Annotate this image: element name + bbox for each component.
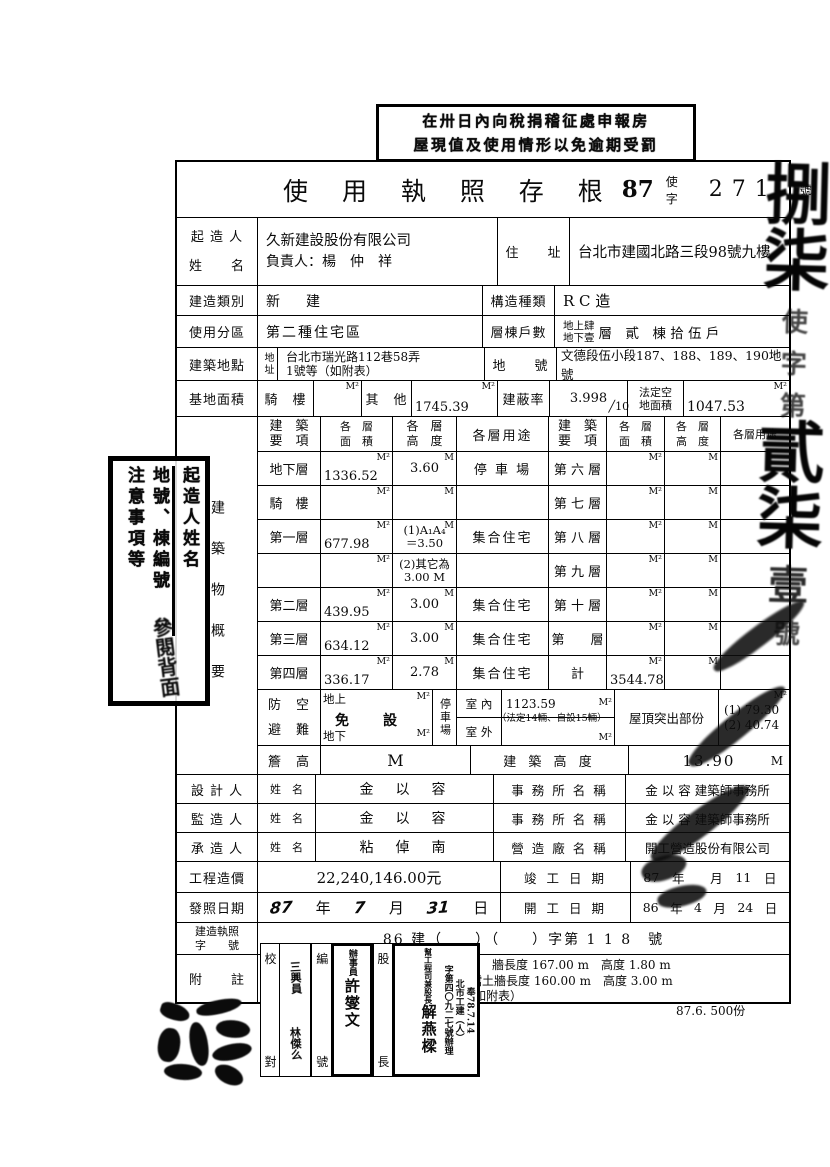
building-summary-grid: 建 築要 項 各 層面 積 各 層高 度 各層用途 建 築要 項 各 層面 積 … xyxy=(257,417,789,774)
floor-height: M3.60 xyxy=(392,452,456,485)
contractor-name: 粘 倬 南 xyxy=(315,833,493,861)
cost-value: 22,240,146.00元 xyxy=(257,862,500,892)
floor-use: 集合住宅 xyxy=(456,622,548,655)
build-type-row: 建造類別 新 建 構造種類 R C 造 xyxy=(177,285,789,315)
floor-height: M (1)A₁A₄＝3.50 xyxy=(392,520,456,553)
floor-area: M² xyxy=(606,622,664,655)
floor-area: M²1336.52 xyxy=(320,452,392,485)
margin-char: 字 xyxy=(780,352,807,379)
floor-row: 第一層 M²677.98 M (1)A₁A₄＝3.50 集合住宅 第 八 層 M… xyxy=(258,519,789,553)
floor-area: M² xyxy=(606,486,664,519)
form-title: 使 用 執 照 存 根 xyxy=(283,172,616,208)
license-year: 87 xyxy=(622,176,654,203)
contractor-label: 承 造 人 xyxy=(177,833,257,861)
build-type-value: 新 建 xyxy=(257,286,482,315)
col-use-header: 各層用途 xyxy=(456,417,548,451)
structure-type-label: 構造種類 xyxy=(482,286,554,315)
floors-units-label: 層棟戶數 xyxy=(482,316,554,347)
notice-stamp-box: 起造人姓名 地號、棟編號 注意事項等 參閱背面 xyxy=(108,456,210,706)
margin-char: 柒 xyxy=(763,227,830,295)
floor-height: M xyxy=(664,554,720,587)
issue-date-value: 87年 7月 31日 xyxy=(257,893,500,922)
notes-row: 附 註 校 對 三興員 林傑么 編 號 xyxy=(177,954,789,1002)
legal-open-space-label: 法定空 地面積 xyxy=(627,381,683,416)
floor-name: 第 八 層 xyxy=(548,520,606,553)
tax-notice-line2: 屋現值及使用情形以免逾期受罰 xyxy=(379,133,693,157)
notes-body: 校 對 三興員 林傑么 編 號 辦事員 許燮文 xyxy=(257,955,789,1002)
floor-area: M² xyxy=(606,452,664,485)
cost-label: 工程造價 xyxy=(177,862,257,892)
floor-name: 第 六 層 xyxy=(548,452,606,485)
notice-stamp-col1: 起造人姓名 xyxy=(172,466,202,636)
floor-name: 第二層 xyxy=(258,588,320,621)
shelter-label: 防 空 避 難 xyxy=(258,690,320,745)
floor-height: M xyxy=(392,486,456,519)
parking-capacity-note: （法定14輛、自設15輛） xyxy=(497,710,607,724)
corner-seal xyxy=(156,998,260,1090)
shelter-exempt-cell: 地上M² 免 設 地下M² xyxy=(320,690,432,745)
site-address-sublabel: 地址 xyxy=(257,348,277,380)
floor-name: 地下層 xyxy=(258,452,320,485)
floor-height: M xyxy=(664,656,720,689)
processing-stamps: 校 對 三興員 林傑么 編 號 辦事員 許燮文 xyxy=(260,943,480,1077)
eaves-value: M xyxy=(320,746,470,775)
parking-detail-cell: 室 內 1123.59 M² 室 外 M² （法定14輛、自設15輛） xyxy=(456,690,614,745)
floor-name: 騎 樓 xyxy=(258,486,320,519)
exempt-text: 免 設 xyxy=(335,710,407,730)
margin-char: 貳 xyxy=(758,419,826,487)
floor-height: M xyxy=(664,588,720,621)
floor-row: 地下層 M²1336.52 M3.60 停 車 場 第 六 層 M² M xyxy=(258,451,789,485)
floor-name: 第一層 xyxy=(258,520,320,553)
floor-height: M xyxy=(664,452,720,485)
parking-label: 停車場 xyxy=(432,690,456,745)
grid-header-row: 建 築要 項 各 層面 積 各 層高 度 各層用途 建 築要 項 各 層面 積 … xyxy=(258,417,789,451)
construction-permit-label: 建造執照 字 號 xyxy=(177,923,257,954)
section-chief-column: 股 長 xyxy=(373,943,393,1077)
name-label: 姓 名 xyxy=(257,804,315,832)
reference-number: 奉78.7.14 xyxy=(464,948,475,1072)
notes-label: 附 註 xyxy=(177,955,257,1002)
build-type-label: 建造類別 xyxy=(177,286,257,315)
floor-name: 第 層 xyxy=(548,622,606,655)
clerk-name-stamp: 辦事員 許燮文 xyxy=(331,943,373,1077)
floor-area: M² xyxy=(320,486,392,519)
site-label: 建築地點 xyxy=(177,348,257,380)
floor-area: M²336.17 xyxy=(320,656,392,689)
other-area: M² 1745.39 xyxy=(411,381,497,416)
indoor-area: 1123.59 M² xyxy=(502,697,614,711)
coverage-value: 3.998 ╱10 xyxy=(549,381,627,416)
unit-m2: M² xyxy=(481,381,495,392)
col-height-header: 各 層高 度 xyxy=(664,417,720,451)
examiner-signature-stamp: 三興員 林傑么 xyxy=(279,943,311,1077)
floor-area: M² xyxy=(606,588,664,621)
permit-form-table: 使 用 執 照 存 根 87 使 字 271 號 起 造 人 姓 名 久新建設股… xyxy=(175,160,791,1004)
floor-row: M² (2)其它為3.00 M 第 九 層 M² M xyxy=(258,553,789,587)
floor-height: M3.00 xyxy=(392,622,456,655)
col-item-header: 建 築要 項 xyxy=(548,417,606,451)
unit-m2: M² xyxy=(345,381,359,392)
name-label: 姓 名 xyxy=(257,833,315,861)
check-column: 校 對 xyxy=(260,943,281,1077)
lot-number-label: 地 號 xyxy=(484,348,556,380)
margin-char: 使 xyxy=(782,310,809,337)
floor-area: M² xyxy=(320,554,392,587)
floor-area: M² xyxy=(606,520,664,553)
license-type-label: 使 字 xyxy=(666,173,683,207)
coverage-label: 建蔽率 xyxy=(497,381,549,416)
start-date-label: 開 工 日 期 xyxy=(500,893,630,922)
office-label: 事 務 所 名 稱 xyxy=(493,775,625,803)
notice-stamp-col3: 注意事項等 xyxy=(122,466,147,636)
total-label: 計 xyxy=(548,656,606,689)
floor-name xyxy=(258,554,320,587)
base-area-label: 基地面積 xyxy=(177,381,257,416)
floor-use: 集合住宅 xyxy=(456,588,548,621)
floor-use xyxy=(456,554,548,587)
site-row: 建築地點 地址 台北市瑞光路112巷58弄 1號等（如附表） 地 號 文德段伍小… xyxy=(177,347,789,380)
notice-stamp-col2: 地號、棟編號 xyxy=(147,466,172,636)
designer-label: 設 計 人 xyxy=(177,775,257,803)
floor-area: M²439.95 xyxy=(320,588,392,621)
col-height-header: 各 層高 度 xyxy=(392,417,456,451)
col-item-header: 建 築要 項 xyxy=(258,417,320,451)
name-label: 姓 名 xyxy=(257,775,315,803)
floor-height: M3.00 xyxy=(392,588,456,621)
floor-name: 第 七 層 xyxy=(548,486,606,519)
tax-notice-stamp: 在卅日內向稅捐稽征處申報房 屋現值及使用情形以免逾期受罰 xyxy=(376,104,696,162)
scanned-use-permit-document: 在卅日內向稅捐稽征處申報房 屋現值及使用情形以免逾期受罰 捌 柒 使 字 第 貳… xyxy=(0,0,830,1167)
col-area-header: 各 層面 積 xyxy=(320,417,392,451)
floor-name: 第 十 層 xyxy=(548,588,606,621)
roof-projection-label: 屋頂突出部份 xyxy=(614,690,718,745)
floor-height: (2)其它為3.00 M xyxy=(392,554,456,587)
floor-height: M xyxy=(664,622,720,655)
approver-name-stamp: 幫工程司兼股長 解燕樑 xyxy=(419,948,440,1072)
site-address: 台北市瑞光路112巷58弄 1號等（如附表） xyxy=(277,348,484,380)
total-area: M²3544.78 xyxy=(606,656,664,689)
floor-row: 第二層 M²439.95 M3.00 集合住宅 第 十 層 M² M xyxy=(258,587,789,621)
serial-column: 編 號 xyxy=(311,943,333,1077)
building-height-label: 建 築 高 度 xyxy=(470,746,628,775)
floor-use: 停 車 場 xyxy=(456,452,548,485)
outdoor-label: 室 外 xyxy=(457,718,502,745)
completion-date-label: 竣 工 日 期 xyxy=(500,862,630,892)
floor-name: 第 九 層 xyxy=(548,554,606,587)
margin-char: 捌 xyxy=(764,161,830,229)
title-row: 使 用 執 照 存 根 87 使 字 271 號 xyxy=(177,162,789,217)
owner-label: 起 造 人 姓 名 xyxy=(177,218,257,285)
designer-name: 金 以 容 xyxy=(315,775,493,803)
zoning-row: 使用分區 第二種住宅區 層棟戶數 地上肆 地下壹 層 貳 棟 拾 伍 戶 xyxy=(177,315,789,347)
zoning-value: 第二種住宅區 xyxy=(257,316,482,347)
supervisor-label: 監 造 人 xyxy=(177,804,257,832)
floor-name: 第四層 xyxy=(258,656,320,689)
floor-height: M2.78 xyxy=(392,656,456,689)
builder-office-label: 營 造 廠 名 稱 xyxy=(493,833,625,861)
floor-use: 集合住宅 xyxy=(456,520,548,553)
floor-use xyxy=(456,486,548,519)
floor-row: 第四層 M²336.17 M2.78 集合住宅 計 M²3544.78 M xyxy=(258,655,789,689)
floor-row: 騎 樓 M² M 第 七 層 M² M xyxy=(258,485,789,519)
other-label: 其 他 xyxy=(361,381,411,416)
floor-area: M²677.98 xyxy=(320,520,392,553)
floor-area: M² xyxy=(606,554,664,587)
floor-name: 第三層 xyxy=(258,622,320,655)
col-area-header: 各 層面 積 xyxy=(606,417,664,451)
floor-height: M xyxy=(664,520,720,553)
arcade-label: 騎 樓 xyxy=(257,381,313,416)
floor-area: M²634.12 xyxy=(320,622,392,655)
owner-name: 久新建設股份有限公司 負責人：楊 仲 祥 xyxy=(257,218,497,285)
tax-notice-line1: 在卅日內向稅捐稽征處申報房 xyxy=(379,109,693,133)
designer-row: 設 計 人 姓 名 金 以 容 事 務 所 名 稱 金 以 容 建築師事務所 xyxy=(177,774,789,803)
floor-row: 第三層 M²634.12 M3.00 集合住宅 第 層 M² M xyxy=(258,621,789,655)
base-area-row: 基地面積 騎 樓 M² 其 他 M² 1745.39 建蔽率 3.998 ╱10… xyxy=(177,380,789,416)
approver-stamp: 奉78.7.14 北市工建（人） 字第四〇九二七號辦理 幫工程司兼股長 解燕樑 xyxy=(392,943,480,1077)
building-summary-section: 建築物概要 建 築要 項 各 層面 積 各 層高 度 各層用途 建 築要 項 各… xyxy=(177,416,789,774)
zoning-label: 使用分區 xyxy=(177,316,257,347)
owner-row: 起 造 人 姓 名 久新建設股份有限公司 負責人：楊 仲 祥 住 址 台北市建國… xyxy=(177,217,789,285)
floor-height: M xyxy=(664,486,720,519)
office-label: 事 務 所 名 稱 xyxy=(493,804,625,832)
arcade-area: M² xyxy=(313,381,361,416)
issue-date-label: 發照日期 xyxy=(177,893,257,922)
eaves-label: 簷 高 xyxy=(258,746,320,775)
indoor-label: 室 內 xyxy=(457,690,502,717)
supervisor-name: 金 以 容 xyxy=(315,804,493,832)
floor-use: 集合住宅 xyxy=(456,656,548,689)
margin-char: 柒 xyxy=(756,485,824,553)
owner-address-label: 住 址 xyxy=(497,218,569,285)
